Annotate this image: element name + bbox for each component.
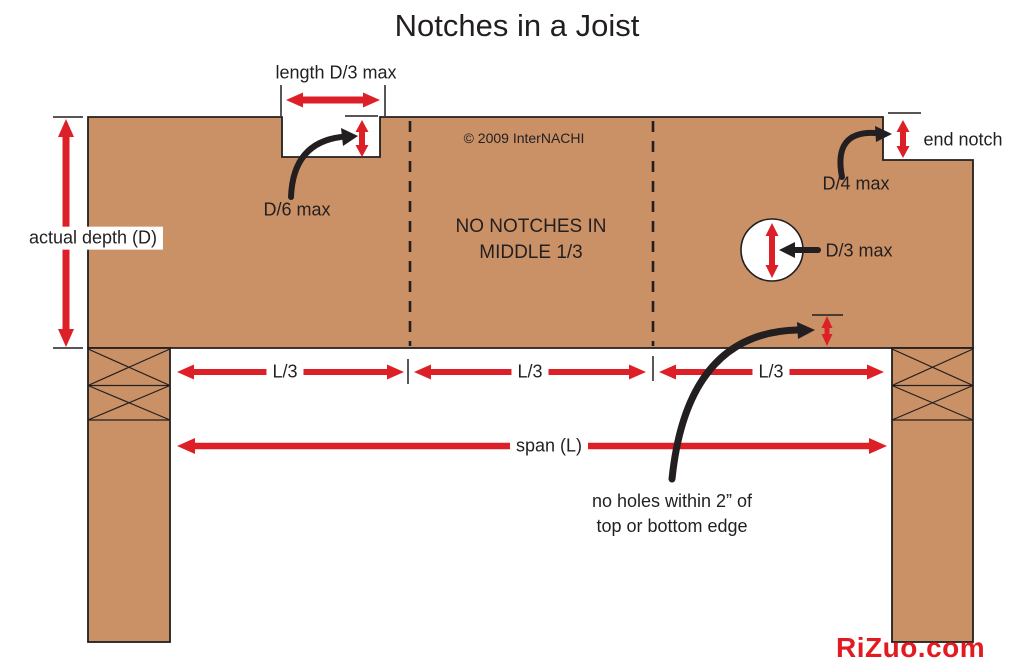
diagram-canvas: Notches in a Joist © 2009 InterNACHI len… [0, 0, 1024, 666]
end-notch-label: end notch [923, 130, 1002, 151]
no-notches-label: NO NOTCHES IN MIDDLE 1/3 [456, 214, 607, 266]
l3-left-label: L/3 [266, 361, 303, 384]
notch-depth-arrow [356, 120, 369, 157]
right-post [892, 348, 973, 642]
hole-diameter-label: D/3 max [825, 241, 892, 262]
notch-depth-label: D/6 max [263, 200, 330, 221]
span-label: span (L) [510, 435, 588, 458]
left-post [88, 348, 170, 642]
no-holes-label: no holes within 2” of top or bottom edge [592, 489, 752, 539]
end-notch-depth-label: D/4 max [822, 174, 889, 195]
joist-diagram [0, 0, 1024, 666]
diagram-title: Notches in a Joist [395, 8, 640, 44]
end-notch-depth-arrow [897, 120, 910, 158]
l3-middle-label: L/3 [511, 361, 548, 384]
notch-length-arrow [286, 93, 380, 108]
actual-depth-label: actual depth (D) [23, 227, 163, 250]
copyright-notice: © 2009 InterNACHI [464, 130, 585, 146]
watermark-text: RiZuo.com [836, 632, 985, 664]
l3-right-label: L/3 [752, 361, 789, 384]
notch-length-label: length D/3 max [275, 63, 396, 84]
